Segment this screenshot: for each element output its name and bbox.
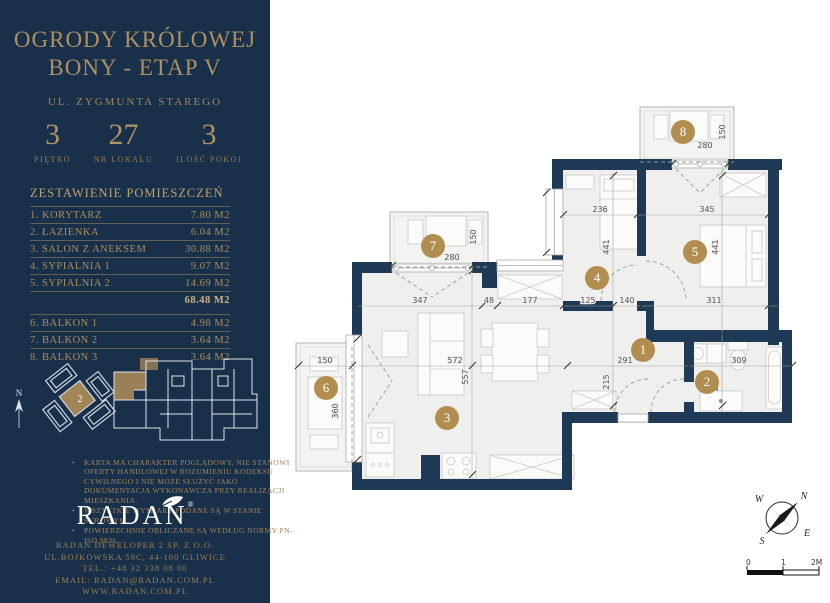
table-row: 4. SYPIALNIA 19.07 M2 bbox=[30, 258, 230, 275]
badge-balcony2: 7 bbox=[421, 234, 445, 258]
building-number-badge: 2 bbox=[78, 394, 83, 405]
dim-corridor-depth: 215 bbox=[602, 374, 611, 389]
dim-room4-depth: 441 bbox=[602, 239, 611, 254]
north-arrow-icon: N bbox=[15, 388, 23, 428]
dim-room5-width: 345 bbox=[699, 205, 714, 214]
table-row: 1. KORYTARZ7.80 M2 bbox=[30, 207, 230, 224]
stove-icon bbox=[442, 453, 476, 479]
compass-s: S bbox=[760, 536, 765, 547]
stat-room-count: 3 ILOŚĆ POKOI bbox=[176, 118, 242, 164]
dim-segment: 311 bbox=[706, 296, 721, 305]
svg-text:1: 1 bbox=[640, 342, 647, 357]
svg-text:N: N bbox=[16, 388, 23, 398]
room-area-table: ZESTAWIENIE POMIESZCZEŃ 1. KORYTARZ7.80 … bbox=[30, 186, 230, 365]
balcony1-door bbox=[346, 335, 362, 462]
developer-logo: RADAN® bbox=[0, 500, 270, 531]
title-line-1: OGRODY KRÓLOWEJ bbox=[0, 26, 270, 54]
svg-text:4: 4 bbox=[594, 270, 601, 285]
leaf-icon bbox=[160, 494, 186, 510]
dim-salon-depth: 557 bbox=[461, 369, 470, 384]
table-row: 5. SYPIALNIA 214.69 M2 bbox=[30, 275, 230, 292]
dining-window bbox=[497, 260, 563, 271]
company-phone: TEL.: +48 32 338 08 00 bbox=[0, 563, 270, 575]
unit-stats: 3 PIĘTRO 27 NR LOKALU 3 ILOŚĆ POKOI bbox=[0, 108, 270, 164]
badge-bathroom: 2 bbox=[695, 370, 719, 394]
dim-corridor-width: 291 bbox=[617, 356, 632, 365]
dim-balcony1-width: 150 bbox=[317, 356, 332, 365]
highlighted-apartment bbox=[114, 372, 146, 400]
dim-bath-width: 309 bbox=[731, 356, 746, 365]
badge-balcony3: 8 bbox=[671, 120, 695, 144]
balcony3-sliding-door bbox=[672, 160, 728, 168]
bathtub-icon bbox=[766, 347, 783, 409]
table-row: 3. SALON Z ANEKSEM30.88 M2 bbox=[30, 241, 230, 258]
svg-text:6: 6 bbox=[323, 380, 330, 395]
svg-text:3: 3 bbox=[444, 410, 451, 425]
registered-mark: ® bbox=[187, 500, 193, 509]
street-address: UL. ZYGMUNTA STAREGO bbox=[0, 96, 270, 108]
location-minimaps: N 2 bbox=[8, 352, 263, 447]
apartment-flyer: { "header": { "title_line1": "OGRODY KRÓ… bbox=[0, 0, 830, 603]
dim-segment: 347 bbox=[412, 296, 427, 305]
dim-balcony2-width: 280 bbox=[444, 253, 459, 262]
table-header: ZESTAWIENIE POMIESZCZEŃ bbox=[30, 186, 230, 207]
compass-e: E bbox=[803, 528, 810, 539]
bedroom1-window bbox=[546, 189, 563, 255]
stat-unit-number: 27 NR LOKALU bbox=[94, 118, 154, 164]
wardrobe bbox=[720, 173, 766, 197]
disclaimer-item: KARTA MA CHARAKTER POGLĄDOWY, NIE STANOW… bbox=[84, 458, 298, 506]
dim-room5-depth: 441 bbox=[711, 239, 720, 254]
washbasin-icon bbox=[700, 391, 742, 411]
badge-corridor: 1 bbox=[631, 338, 655, 362]
scale-0: 0 bbox=[746, 558, 751, 567]
company-name: RADAN DEWELOPER 2 SP. Z O.O. bbox=[0, 540, 270, 552]
badge-balcony1: 6 bbox=[314, 376, 338, 400]
badge-bedroom2: 5 bbox=[683, 240, 707, 264]
balcony2-sliding-door bbox=[392, 264, 472, 272]
svg-text:7: 7 bbox=[430, 238, 437, 253]
svg-text:5: 5 bbox=[692, 244, 699, 259]
svg-text:8: 8 bbox=[680, 124, 687, 139]
compass-rose-icon: N W S E bbox=[746, 486, 816, 550]
scale-2: 2M bbox=[811, 558, 822, 567]
badge-living-room: 3 bbox=[435, 406, 459, 430]
dim-segment: 48 bbox=[484, 296, 494, 305]
dim-segment: 125 bbox=[580, 296, 595, 305]
compass-w: W bbox=[755, 494, 765, 505]
company-website: WWW.RADAN.COM.PL bbox=[0, 586, 270, 598]
company-email: EMAIL: RADAN@RADAN.COM.PL bbox=[0, 575, 270, 587]
stat-floor: 3 PIĘTRO bbox=[34, 118, 71, 164]
dim-segment: 177 bbox=[522, 296, 537, 305]
dim-balcony3-width: 280 bbox=[697, 141, 712, 150]
scale-bar: 0 1 2M bbox=[744, 556, 826, 582]
dim-balcony1-depth: 360 bbox=[331, 403, 340, 418]
kitchen-sink-unit bbox=[366, 423, 394, 477]
contact-block: RADAN DEWELOPER 2 SP. Z O.O. UL.BOJKOWSK… bbox=[0, 540, 270, 598]
scale-1: 1 bbox=[781, 558, 786, 567]
floor-overview-mini bbox=[114, 358, 257, 440]
table-total-row: 68.48 M2 bbox=[30, 292, 230, 314]
dim-balcony3-depth: 150 bbox=[718, 124, 727, 139]
table-row: 6. BALKON 14.98 M2 bbox=[30, 314, 230, 331]
dim-balcony2-depth: 150 bbox=[469, 229, 478, 244]
kitchen-counter bbox=[490, 455, 574, 479]
dim-room4-width: 236 bbox=[592, 205, 607, 214]
dim-segment: 140 bbox=[619, 296, 634, 305]
sofa bbox=[418, 313, 464, 395]
table-row: 2. ŁAZIENKA6.04 M2 bbox=[30, 224, 230, 241]
bed-double bbox=[700, 225, 766, 287]
site-plan-mini: 2 bbox=[30, 352, 124, 446]
title-line-2: BONY - ETAP V bbox=[0, 54, 270, 82]
company-address: UL.BOJKOWSKA 59C, 44-100 GLIWICE bbox=[0, 552, 270, 564]
coffee-table bbox=[382, 331, 408, 357]
info-sidebar: OGRODY KRÓLOWEJ BONY - ETAP V UL. ZYGMUN… bbox=[0, 0, 270, 603]
dim-salon-width: 572 bbox=[447, 356, 462, 365]
table-row: 7. BALKON 23.64 M2 bbox=[30, 331, 230, 348]
svg-text:2: 2 bbox=[704, 374, 711, 389]
compass-n: N bbox=[800, 491, 809, 502]
badge-bedroom1: 4 bbox=[585, 266, 609, 290]
page-title: OGRODY KRÓLOWEJ BONY - ETAP V bbox=[0, 26, 270, 82]
entrance-threshold bbox=[618, 414, 648, 422]
